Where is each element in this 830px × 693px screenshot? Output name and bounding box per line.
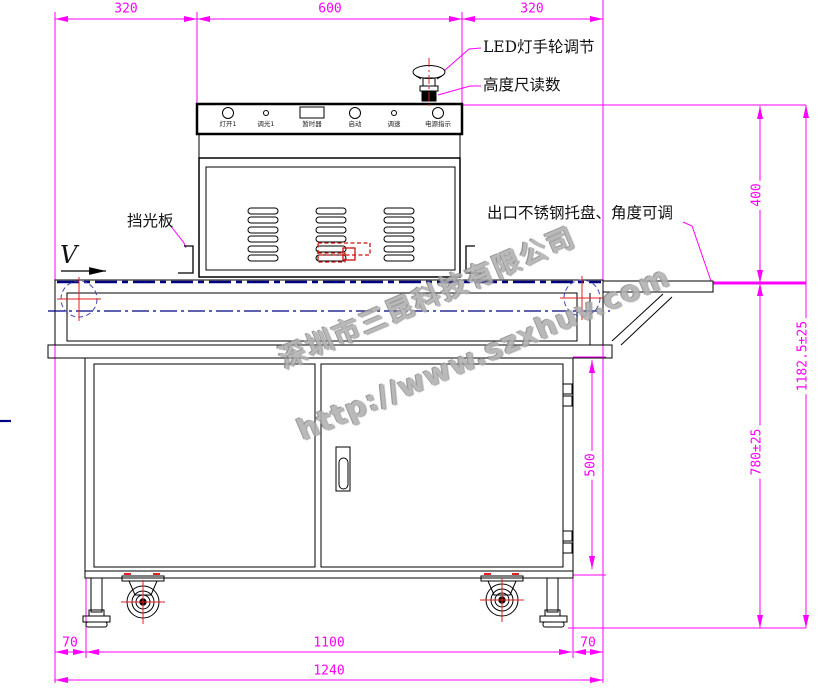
label-belt-direction-v: V — [60, 243, 77, 267]
panel-label-power-indicator: 电源指示 — [416, 121, 460, 128]
light-shield-bracket-left — [178, 246, 193, 273]
panel-label-timer: 暂时器 — [290, 121, 334, 128]
cabinet — [85, 358, 573, 578]
dim-right-1182: 1182.5±25 — [797, 318, 810, 394]
panel-label-speed: 调速 — [372, 121, 416, 128]
machine-outline — [48, 66, 713, 628]
leveling-foot-right — [540, 578, 567, 627]
door-hinge-bottom — [563, 531, 572, 541]
door-hinge-top — [563, 384, 572, 394]
label-height-gauge: 高度尺读数 — [483, 78, 561, 94]
dim-top-left-320: 320 — [114, 3, 137, 16]
panel-label-dimmer: 调光1 — [244, 121, 288, 128]
label-outlet-tray: 出口不锈钢托盘、角度可调 — [487, 206, 673, 222]
machine-drawing — [0, 0, 830, 693]
dim-bottom-right-70: 70 — [580, 637, 596, 650]
dim-bottom-left-70: 70 — [62, 637, 78, 650]
dim-right-400: 400 — [751, 180, 764, 209]
leveling-foot-left — [83, 578, 110, 627]
panel-label-start: 启动 — [333, 121, 377, 128]
dimension-lines — [55, 19, 806, 680]
label-led-handwheel: LED灯手轮调节 — [483, 40, 595, 56]
dim-top-mid-600: 600 — [318, 3, 341, 16]
control-panel-shapes — [197, 104, 462, 134]
dim-bottom-1100: 1100 — [313, 637, 344, 650]
dim-right-780: 780±25 — [751, 426, 764, 479]
label-light-shield: 挡光板 — [127, 214, 174, 230]
cad-drawing-canvas: 320 600 320 400 1182.5±25 780±25 500 70 … — [0, 0, 830, 693]
dim-bottom-1240: 1240 — [313, 665, 344, 678]
dim-right-500: 500 — [585, 450, 598, 479]
dim-top-right-320: 320 — [520, 3, 543, 16]
panel-lower-band — [199, 134, 460, 158]
cabinet-door-left — [94, 364, 315, 567]
